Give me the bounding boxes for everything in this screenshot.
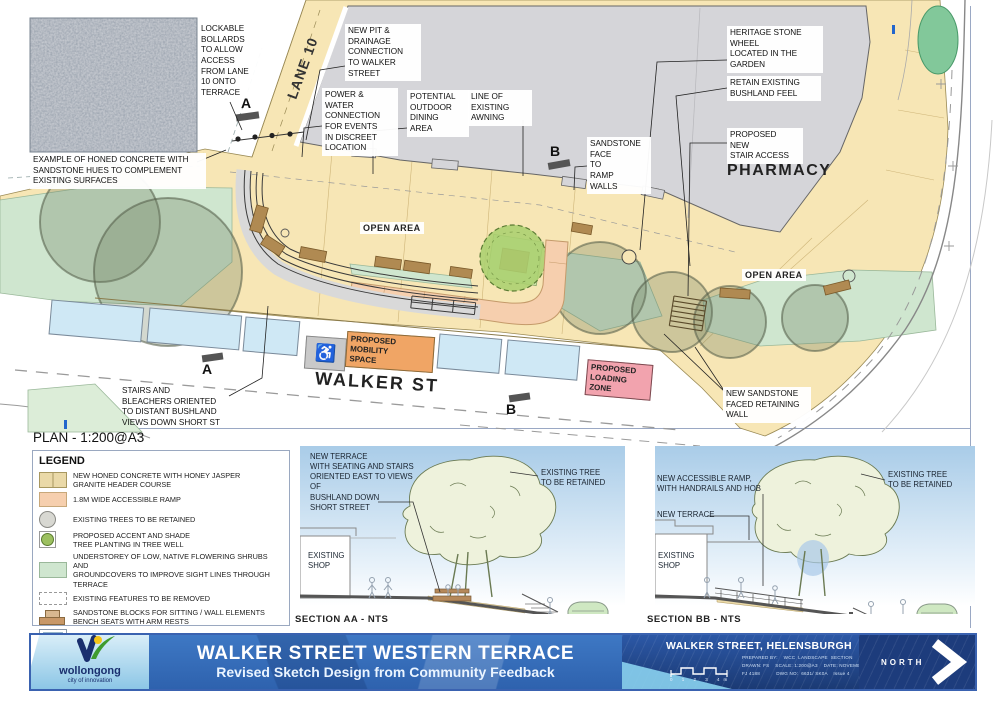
- section-bb-caption: SECTION BB - NTS: [647, 614, 741, 625]
- meta-drawn-scale-date: DRAWN: FS SCALE: 1:200@A3 DATE: NOVEMBER…: [742, 663, 859, 668]
- section-bb-panel: NEW ACCESSIBLE RAMP, WITH HANDRAILS AND …: [655, 446, 975, 614]
- aa-note-shop: EXISTING SHOP: [308, 551, 344, 571]
- drawing-sheet: EXAMPLE OF HONED CONCRETE WITH SANDSTONE…: [0, 0, 1000, 706]
- meta-dwg-number: FJ 4188 DWG NO: 6631/ SK0A Issue 4: [742, 671, 850, 676]
- callout-stairs-bleachers: STAIRS AND BLEACHERS ORIENTED TO DISTANT…: [122, 386, 230, 429]
- sheet-title: WALKER STREET WESTERN TERRACE: [149, 643, 622, 665]
- legend-item-tree-proposed: PROPOSED ACCENT AND SHADE TREE PLANTING …: [39, 531, 283, 549]
- section-marker-a-top: A: [241, 95, 251, 111]
- callout-awning: LINE OF EXISTING AWNING: [468, 90, 532, 126]
- north-panel: NORTH: [859, 635, 975, 689]
- section-marker-b-top: B: [550, 143, 560, 159]
- logo-name: wollongong: [59, 666, 121, 677]
- mobility-space-zone: PROPOSED MOBILITY SPACE: [345, 331, 435, 373]
- pharmacy-label: PHARMACY: [727, 162, 831, 180]
- legend-item-concrete: NEW HONED CONCRETE WITH HONEY JASPER GRA…: [39, 471, 283, 489]
- section-aa-panel: NEW TERRACE WITH SEATING AND STAIRS ORIE…: [300, 446, 625, 614]
- loading-zone: PROPOSED LOADING ZONE: [585, 359, 654, 401]
- tree-top-right: [918, 6, 958, 74]
- callout-outdoor-dining: POTENTIAL OUTDOOR DINING AREA: [407, 90, 469, 137]
- callout-stair-access: PROPOSED NEW STAIR ACCESS: [727, 128, 803, 164]
- callout-heritage-wheel: HERITAGE STONE WHEEL LOCATED IN THE GARD…: [727, 26, 823, 73]
- open-area-label-2: OPEN AREA: [742, 269, 806, 281]
- callout-retain-bushland: RETAIN EXISTING BUSHLAND FEEL: [727, 76, 821, 101]
- sheet-subtitle: Revised Sketch Design from Community Fee…: [149, 665, 622, 680]
- north-label: NORTH: [881, 658, 924, 667]
- site-plan-drawing: [0, 0, 1000, 446]
- legend-item-removed: EXISTING FEATURES TO BE REMOVED: [39, 592, 283, 605]
- bb-note-ramp: NEW ACCESSIBLE RAMP, WITH HANDRAILS AND …: [657, 474, 765, 494]
- legend: LEGEND NEW HONED CONCRETE WITH HONEY JAS…: [32, 450, 290, 626]
- removed-swatch: [39, 592, 73, 605]
- concrete-sample-photo: [30, 18, 197, 152]
- aa-note-tree: EXISTING TREE TO BE RETAINED: [541, 468, 621, 488]
- tree-proposed-swatch: [39, 531, 73, 548]
- texture-caption: EXAMPLE OF HONED CONCRETE WITH SANDSTONE…: [30, 153, 206, 189]
- callout-lockable-bollards: LOCKABLE BOLLARDS TO ALLOW ACCESS FROM L…: [198, 22, 266, 101]
- title-bar-main: WALKER STREET WESTERN TERRACE Revised Sk…: [149, 635, 622, 689]
- north-arrow-icon: [929, 637, 969, 687]
- section-aa-caption: SECTION AA - NTS: [295, 614, 388, 625]
- legend-title: LEGEND: [39, 455, 283, 467]
- legend-item-trees-retained: EXISTING TREES TO BE RETAINED: [39, 511, 283, 528]
- legend-item-understorey: UNDERSTOREY OF LOW, NATIVE FLOWERING SHR…: [39, 552, 283, 588]
- legend-item-sandstone: SANDSTONE BLOCKS FOR SITTING / WALL ELEM…: [39, 608, 283, 626]
- bb-note-shop: EXISTING SHOP: [658, 551, 694, 571]
- scale-bar-ticks: 0 1 2 3 4m: [670, 677, 731, 682]
- callout-retaining-wall: NEW SANDSTONE FACED RETAINING WALL: [723, 387, 811, 423]
- project-location: WALKER STREET, HELENSBURGH: [666, 640, 852, 652]
- bb-note-terrace: NEW TERRACE: [657, 510, 714, 520]
- title-bar-meta: WALKER STREET, HELENSBURGH PREPARED BY: …: [622, 635, 859, 689]
- tree-retained-swatch: [39, 511, 73, 528]
- open-area-label-1: OPEN AREA: [360, 222, 424, 234]
- sandstone-swatch: [39, 610, 73, 625]
- bb-note-tree: EXISTING TREE TO BE RETAINED: [888, 470, 968, 490]
- plan-scale-title: PLAN - 1:200@A3: [33, 430, 144, 445]
- understorey-swatch: [39, 562, 73, 578]
- aa-note-terrace: NEW TERRACE WITH SEATING AND STAIRS ORIE…: [310, 452, 425, 513]
- legend-item-ramp: 1.8M WIDE ACCESSIBLE RAMP: [39, 492, 283, 507]
- logo-tagline: city of innovation: [68, 678, 113, 684]
- accent-tree: [480, 225, 546, 291]
- meta-prepared-by: PREPARED BY: WCC LANDSCAPE SECTION: [742, 655, 853, 660]
- heritage-stone-wheel: [622, 250, 636, 264]
- callout-power-water: POWER & WATER CONNECTION FOR EVENTS IN D…: [322, 88, 398, 156]
- ramp-swatch: [39, 492, 73, 507]
- concrete-swatch: [39, 472, 73, 488]
- wollongong-logo-icon: [60, 635, 120, 665]
- scale-bar: [670, 665, 730, 677]
- section-marker-a-bottom: A: [202, 361, 212, 377]
- title-bar: wollongong city of innovation WALKER STR…: [29, 633, 977, 691]
- wollongong-logo: wollongong city of innovation: [31, 635, 149, 689]
- section-marker-b-bottom: B: [506, 401, 516, 417]
- callout-new-pit: NEW PIT & DRAINAGE CONNECTION TO WALKER …: [345, 24, 421, 81]
- wheelchair-icon: ♿: [304, 336, 347, 372]
- callout-sandstone-face: SANDSTONE FACE TO RAMP WALLS: [587, 137, 651, 194]
